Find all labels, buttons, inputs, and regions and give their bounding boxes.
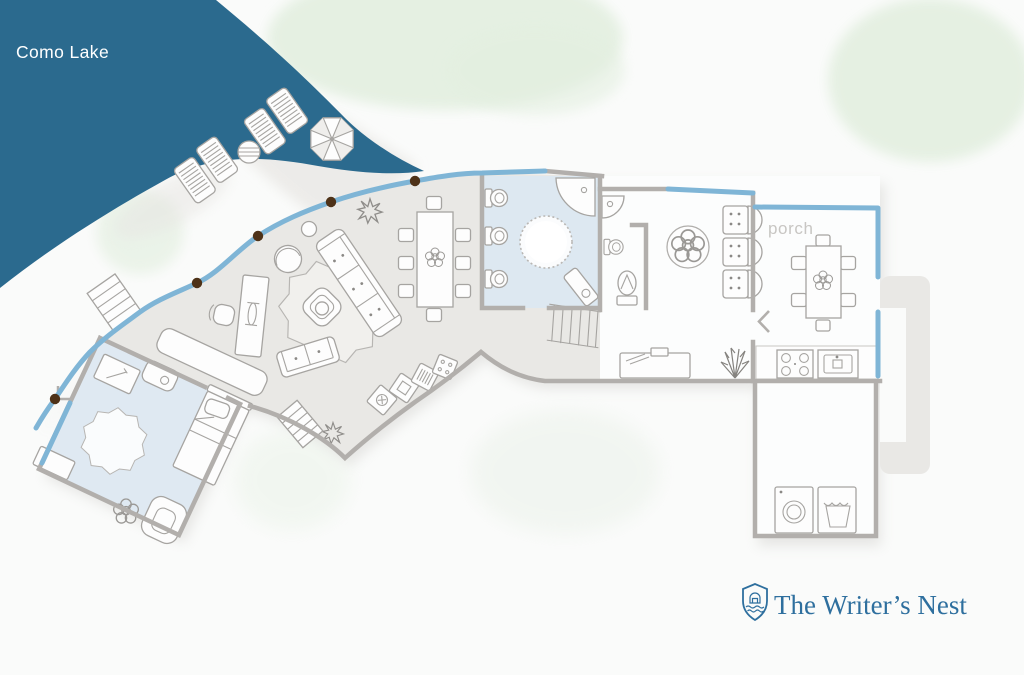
post-icon	[326, 197, 336, 207]
laundry-tub-icon	[818, 487, 856, 533]
parasol-icon	[311, 118, 353, 160]
console-table-icon	[620, 348, 690, 378]
lake-label: Como Lake	[16, 42, 109, 62]
side-terrace-steps	[880, 308, 906, 442]
post-icon	[410, 176, 420, 186]
tree-icon	[470, 410, 660, 534]
brand-logo: The Writer’s Nest	[743, 584, 967, 620]
dining-table-icon	[417, 212, 453, 307]
bidet-icon	[604, 239, 623, 254]
tree-icon	[445, 25, 625, 115]
bathroom-round-rug	[520, 216, 572, 268]
kitchen	[756, 346, 878, 379]
kitchen-counter-icon	[756, 346, 878, 379]
side-table-icon	[302, 222, 317, 237]
laundry-room-floor	[753, 381, 876, 538]
post-icon	[253, 231, 263, 241]
bench-seats-icon	[723, 206, 762, 298]
post-icon	[50, 394, 60, 404]
toilet-icon	[617, 271, 637, 305]
brand-name: The Writer’s Nest	[774, 590, 967, 620]
washing-machine-icon	[775, 487, 813, 533]
stove-icon	[777, 350, 813, 378]
post-icon	[192, 278, 202, 288]
floorplan-svg: Como Lake	[0, 0, 1024, 675]
round-table-icon	[238, 141, 260, 163]
floorplan-illustration: Como Lake	[0, 0, 1024, 675]
kitchen-sink-icon	[818, 350, 858, 378]
porch-label: porch	[768, 219, 814, 238]
porch-table-icon	[806, 246, 841, 318]
